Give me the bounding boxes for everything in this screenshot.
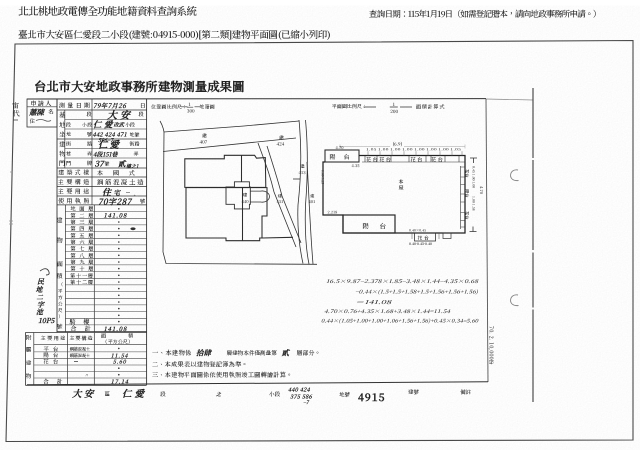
svg-text:北北桃地政電傳全功能地籍資料查詢系統: 北北桃地政電傳全功能地籍資料查詢系統 <box>18 4 197 19</box>
svg-text:臺北市大安區仁愛段二小段(建號:04915-000)[第二類: 臺北市大安區仁愛段二小段(建號:04915-000)[第二類]建物平面圖(已縮小… <box>18 27 330 41</box>
svg-text:查詢日期：115年1月19日（如需登記謄本，請向地政事務所申: 查詢日期：115年1月19日（如需登記謄本，請向地政事務所申請。） <box>369 8 601 20</box>
